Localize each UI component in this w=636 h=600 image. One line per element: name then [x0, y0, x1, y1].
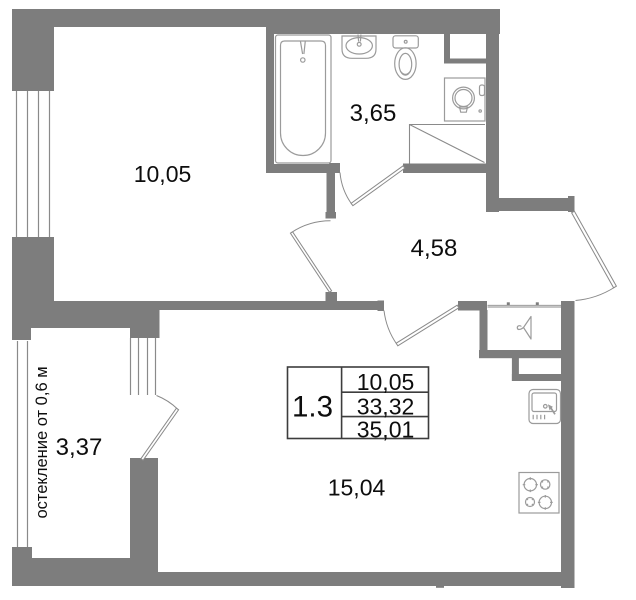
- svg-text:15,04: 15,04: [328, 475, 386, 501]
- svg-text:3,65: 3,65: [350, 100, 397, 127]
- svg-text:10,05: 10,05: [134, 161, 192, 187]
- svg-text:3,37: 3,37: [56, 434, 103, 461]
- svg-text:остекление от 0,6 м: остекление от 0,6 м: [33, 366, 51, 518]
- svg-text:4,58: 4,58: [411, 235, 458, 262]
- svg-text:1.3: 1.3: [292, 391, 333, 424]
- svg-text:10,05: 10,05: [357, 369, 415, 395]
- svg-text:35,01: 35,01: [357, 417, 415, 443]
